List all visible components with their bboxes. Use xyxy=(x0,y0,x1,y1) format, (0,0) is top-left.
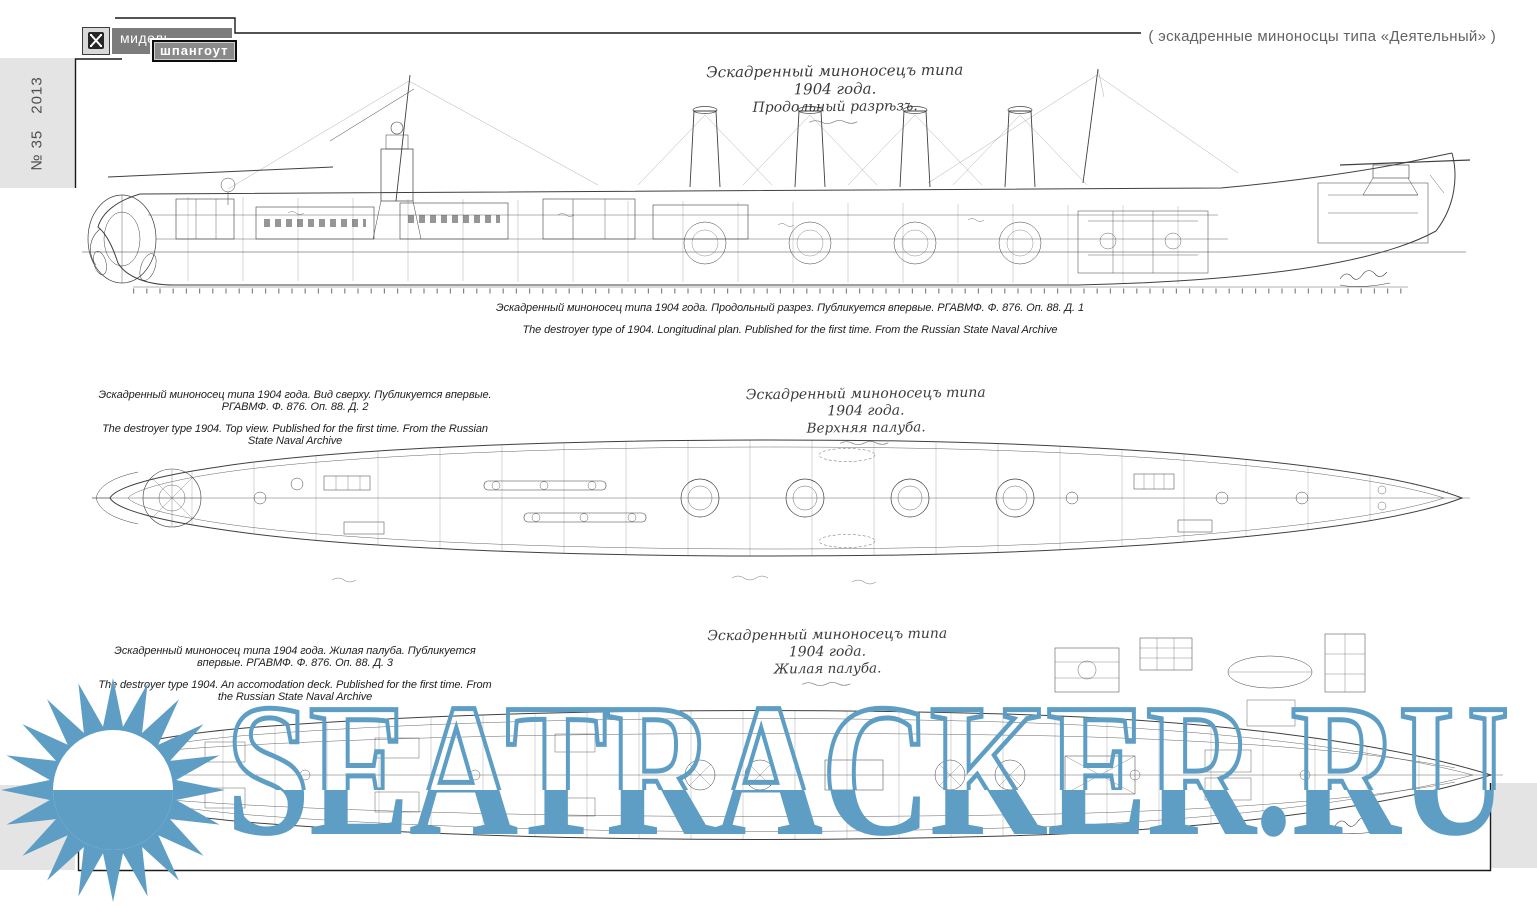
caption-accommodation-deck: Эскадренный миноносец типа 1904 года. Жи… xyxy=(95,645,495,703)
caption-longitudinal: Эскадренный миноносец типа 1904 года. Пр… xyxy=(370,302,1210,336)
caption-en: The destroyer type of 1904. Longitudinal… xyxy=(370,324,1210,336)
hand-title-line1: Эскадренный миноносецъ типа 1904 года. xyxy=(700,61,970,100)
logo-word-shpangout: шпангоут xyxy=(152,40,237,62)
hand-title-line1: Эскадренный миноносецъ типа 1904 года. xyxy=(700,626,955,663)
page-title: ( эскадренные миноносцы типа «Деятельный… xyxy=(1148,28,1496,45)
inset-detail-sketches xyxy=(1055,634,1365,726)
hand-title-longitudinal: Эскадренный миноносецъ типа 1904 года. П… xyxy=(700,61,971,127)
hand-title-accommodation-deck: Эскадренный миноносецъ типа 1904 года. Ж… xyxy=(700,626,956,689)
issue-year: 2013 xyxy=(29,76,46,113)
hand-title-top-view: Эскадренный миноносецъ типа 1904 года. В… xyxy=(742,385,991,448)
midship-section-icon xyxy=(82,27,110,55)
hand-title-line2: Жилая палуба. xyxy=(700,660,955,679)
hand-title-line1: Эскадренный миноносецъ типа 1904 года. xyxy=(742,385,990,422)
caption-ru: Эскадренный миноносец типа 1904 года. Жи… xyxy=(95,645,495,669)
signature-scribble xyxy=(1335,818,1385,834)
caption-ru: Эскадренный миноносец типа 1904 года. Ви… xyxy=(95,389,495,413)
caption-top-view: Эскадренный миноносец типа 1904 года. Ви… xyxy=(95,389,495,447)
scale-note-scribble xyxy=(805,117,865,126)
signature-scribble xyxy=(1340,271,1390,287)
hand-title-line2: Продольный разрѣзъ. xyxy=(700,97,970,117)
hand-title-line2: Верхняя палуба. xyxy=(742,419,990,438)
caption-ru: Эскадренный миноносец типа 1904 года. Пр… xyxy=(370,302,1210,314)
caption-en: The destroyer type 1904. An accomodation… xyxy=(95,679,495,703)
issue-number: № 35 xyxy=(29,129,46,170)
issue-sidebar: № 35 2013 xyxy=(0,58,75,188)
magazine-page-scan: № 35 2013 мидель- шпангоут ( эскадренные… xyxy=(0,0,1537,906)
caption-en: The destroyer type 1904. Top view. Publi… xyxy=(95,423,495,447)
issue-label: № 35 2013 xyxy=(29,76,46,170)
scale-note-scribble xyxy=(836,438,896,447)
scale-note-scribble xyxy=(798,679,858,688)
